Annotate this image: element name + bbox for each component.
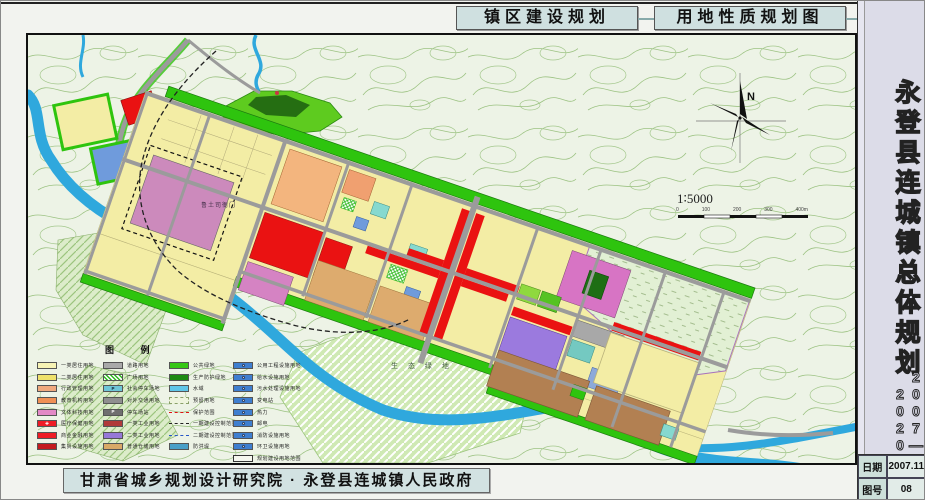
legend-swatch: [103, 374, 123, 381]
legend-swatch: [233, 362, 253, 369]
legend-item: 普通仓储用地: [103, 441, 160, 453]
legend-item: 预留用地: [169, 395, 237, 407]
tab-connector: [846, 18, 857, 20]
legend-label: 预留用地: [193, 397, 215, 404]
legend-item: 教育机构用地: [37, 395, 94, 407]
legend-item: 防洪堤: [169, 441, 237, 453]
date-label: 日期: [858, 455, 887, 478]
legend-swatch: [103, 420, 123, 427]
legend-item: 污水处理设施用地: [233, 383, 301, 395]
legend-item: 邮电: [233, 418, 301, 430]
legend-swatch: [169, 420, 189, 427]
legend-item: 一类工业用地: [103, 418, 160, 430]
legend-item: 水域: [169, 383, 237, 395]
legend-swatch: [37, 397, 57, 404]
legend-swatch: [169, 385, 189, 392]
legend-label: 普通仓储用地: [127, 443, 160, 450]
legend-swatch: P: [103, 409, 123, 416]
legend-column: 公用工程设施用地给水设施用地污水处理设施用地变电站热力邮电消防设施用地环卫设施用…: [233, 360, 301, 464]
legend-label: 二类居住用地: [61, 374, 94, 381]
legend-label: 邮电: [257, 420, 268, 427]
legend-swatch: [169, 362, 189, 369]
legend-column: 道路用地广场用地P社会停车场地对外交通用地P停车场站一类工业用地二类工业用地普通…: [103, 360, 160, 453]
legend-label: 公用工程设施用地: [257, 362, 301, 369]
legend-swatch: [169, 409, 189, 416]
legend-label: 医疗保健用地: [61, 420, 94, 427]
title-tab-landuse-map: 用地性质规划图: [654, 6, 846, 30]
legend-item: 环卫设施用地: [233, 441, 301, 453]
scale-tick: 200: [733, 207, 741, 213]
legend-swatch: [169, 374, 189, 381]
legend-item: 行政管理用地: [37, 383, 94, 395]
legend-label: 教育机构用地: [61, 397, 94, 404]
legend-item: 公共绿地: [169, 360, 237, 372]
legend-swatch: [103, 443, 123, 450]
legend-swatch: [37, 409, 57, 416]
legend-item: 二期建设控制范围: [169, 430, 237, 442]
legend-label: 集贸设施用地: [61, 443, 94, 450]
legend-swatch: [103, 362, 123, 369]
legend-label: 热力: [257, 409, 268, 416]
legend: 图 例 一类居住用地二类居住用地行政管理用地教育机构用地文体科技用地✚医疗保健用…: [37, 343, 277, 360]
legend-label: 污水处理设施用地: [257, 385, 301, 392]
scale-tick: 0: [676, 207, 679, 213]
legend-label: 水域: [193, 385, 204, 392]
legend-swatch: [37, 374, 57, 381]
legend-swatch: [37, 432, 57, 439]
figure-number-value: 08: [887, 478, 925, 500]
info-row-figure-number: 图号 08: [858, 478, 925, 500]
legend-label: 保护范围: [193, 409, 215, 416]
info-row-date: 日期 2007.11: [858, 455, 925, 478]
legend-label: 规划建设用地范围: [257, 455, 301, 462]
date-value: 2007.11: [887, 455, 925, 478]
legend-item: 热力: [233, 406, 301, 418]
legend-swatch: [169, 397, 189, 404]
legend-label: 公共绿地: [193, 362, 215, 369]
legend-label: 消防设施用地: [257, 432, 290, 439]
legend-swatch: [233, 455, 253, 462]
legend-label: 文体科技用地: [61, 409, 94, 416]
legend-item: ✚医疗保健用地: [37, 418, 94, 430]
legend-label: 社会停车场地: [127, 385, 160, 392]
scale-tick: 300: [764, 207, 772, 213]
legend-label: 一类居住用地: [61, 362, 94, 369]
legend-item: 对外交通用地: [103, 395, 160, 407]
legend-label: 给水设施用地: [257, 374, 290, 381]
tab-connector: [638, 18, 654, 20]
legend-item: P社会停车场地: [103, 383, 160, 395]
legend-item: 保护范围: [169, 406, 237, 418]
scale-tick: 400m: [795, 207, 808, 213]
legend-swatch: [233, 397, 253, 404]
plan-title-vertical: 永登县连城镇总体规划: [868, 79, 924, 379]
legend-item: 变电站: [233, 395, 301, 407]
sheet-top-border: [1, 2, 925, 4]
legend-swatch: [103, 432, 123, 439]
legend-item: P停车场站: [103, 406, 160, 418]
scale-bar: [678, 215, 808, 218]
title-sidebar: 永登县连城镇总体规划 2007——2020 日期 2007.11 图号 08: [857, 1, 925, 500]
legend-item: 广场用地: [103, 372, 160, 384]
legend-swatch: [233, 385, 253, 392]
legend-swatch: [169, 432, 189, 439]
sidebar-inner-strip: [858, 1, 865, 500]
figure-number-label: 图号: [858, 478, 887, 500]
legend-label: 对外交通用地: [127, 397, 160, 404]
legend-label: 二类工业用地: [127, 432, 160, 439]
legend-swatch: [233, 443, 253, 450]
sheet-info-table: 日期 2007.11 图号 08: [858, 454, 925, 500]
landmark-label: 鲁土司衙门: [201, 200, 236, 209]
legend-swatch: [103, 397, 123, 404]
legend-item: 给水设施用地: [233, 372, 301, 384]
legend-item: 一期建设控制范围: [169, 418, 237, 430]
legend-label: 变电站: [257, 397, 274, 404]
legend-item: 文体科技用地: [37, 406, 94, 418]
legend-label: 一类工业用地: [127, 420, 160, 427]
legend-label: 防洪堤: [193, 443, 210, 450]
legend-column: 一类居住用地二类居住用地行政管理用地教育机构用地文体科技用地✚医疗保健用地商业金…: [37, 360, 94, 453]
eco-green-label: 生 态 绿 地: [391, 361, 453, 371]
legend-label: 停车场站: [127, 409, 149, 416]
legend-label: 行政管理用地: [61, 385, 94, 392]
legend-swatch: [233, 374, 253, 381]
legend-swatch: [37, 385, 57, 392]
legend-swatch: [169, 443, 189, 450]
scale-tick: 100: [702, 207, 710, 213]
legend-item: 道路用地: [103, 360, 160, 372]
legend-label: 一期建设控制范围: [193, 420, 237, 427]
legend-item: 二类工业用地: [103, 430, 160, 442]
legend-label: 环卫设施用地: [257, 443, 290, 450]
legend-item: 消防设施用地: [233, 430, 301, 442]
scale-tick-labels: 0 100 200 300 400m: [676, 207, 808, 213]
legend-item: 规划建设用地范围: [233, 453, 301, 465]
legend-item: 生产防护绿地: [169, 372, 237, 384]
legend-swatch: P: [103, 385, 123, 392]
legend-label: 二期建设控制范围: [193, 432, 237, 439]
legend-swatch: [233, 420, 253, 427]
legend-item: 公用工程设施用地: [233, 360, 301, 372]
north-label: N: [747, 91, 755, 103]
title-tab-construction-plan: 镇区建设规划: [456, 6, 638, 30]
legend-label: 商业金融用地: [61, 432, 94, 439]
legend-item: 一类居住用地: [37, 360, 94, 372]
plan-sheet: 镇区建设规划 用地性质规划图: [0, 0, 925, 500]
legend-label: 道路用地: [127, 362, 149, 369]
legend-item: 二类居住用地: [37, 372, 94, 384]
map-frame: 鲁土司衙门 生 态 绿 地 N 1∶5000 0 100 200 300 400…: [26, 33, 857, 465]
legend-swatch: [233, 409, 253, 416]
scale-text: 1∶5000: [677, 191, 713, 207]
legend-column: 公共绿地生产防护绿地水域预留用地保护范围一期建设控制范围二期建设控制范围防洪堤: [169, 360, 237, 453]
legend-swatch: [37, 443, 57, 450]
legend-label: 生产防护绿地: [193, 374, 226, 381]
legend-swatch: [37, 362, 57, 369]
credit-bar: 甘肃省城乡规划设计研究院 · 永登县连城镇人民政府: [63, 468, 490, 493]
legend-swatch: [233, 432, 253, 439]
legend-swatch: ✚: [37, 420, 57, 427]
legend-title: 图 例: [105, 343, 277, 356]
legend-label: 广场用地: [127, 374, 149, 381]
legend-item: 商业金融用地: [37, 430, 94, 442]
legend-item: 集贸设施用地: [37, 441, 94, 453]
